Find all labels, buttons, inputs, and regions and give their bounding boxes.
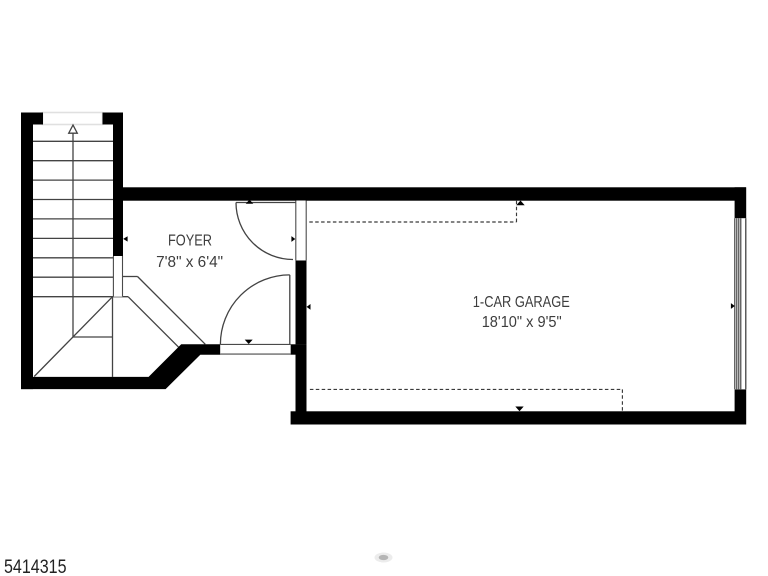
svg-text:1-CAR GARAGE: 1-CAR GARAGE xyxy=(473,294,570,311)
svg-text:7'8" x 6'4": 7'8" x 6'4" xyxy=(156,254,223,271)
svg-text:FOYER: FOYER xyxy=(168,232,212,249)
svg-text:18'10" x 9'5": 18'10" x 9'5" xyxy=(482,314,562,331)
svg-text:5414315: 5414315 xyxy=(4,557,67,576)
